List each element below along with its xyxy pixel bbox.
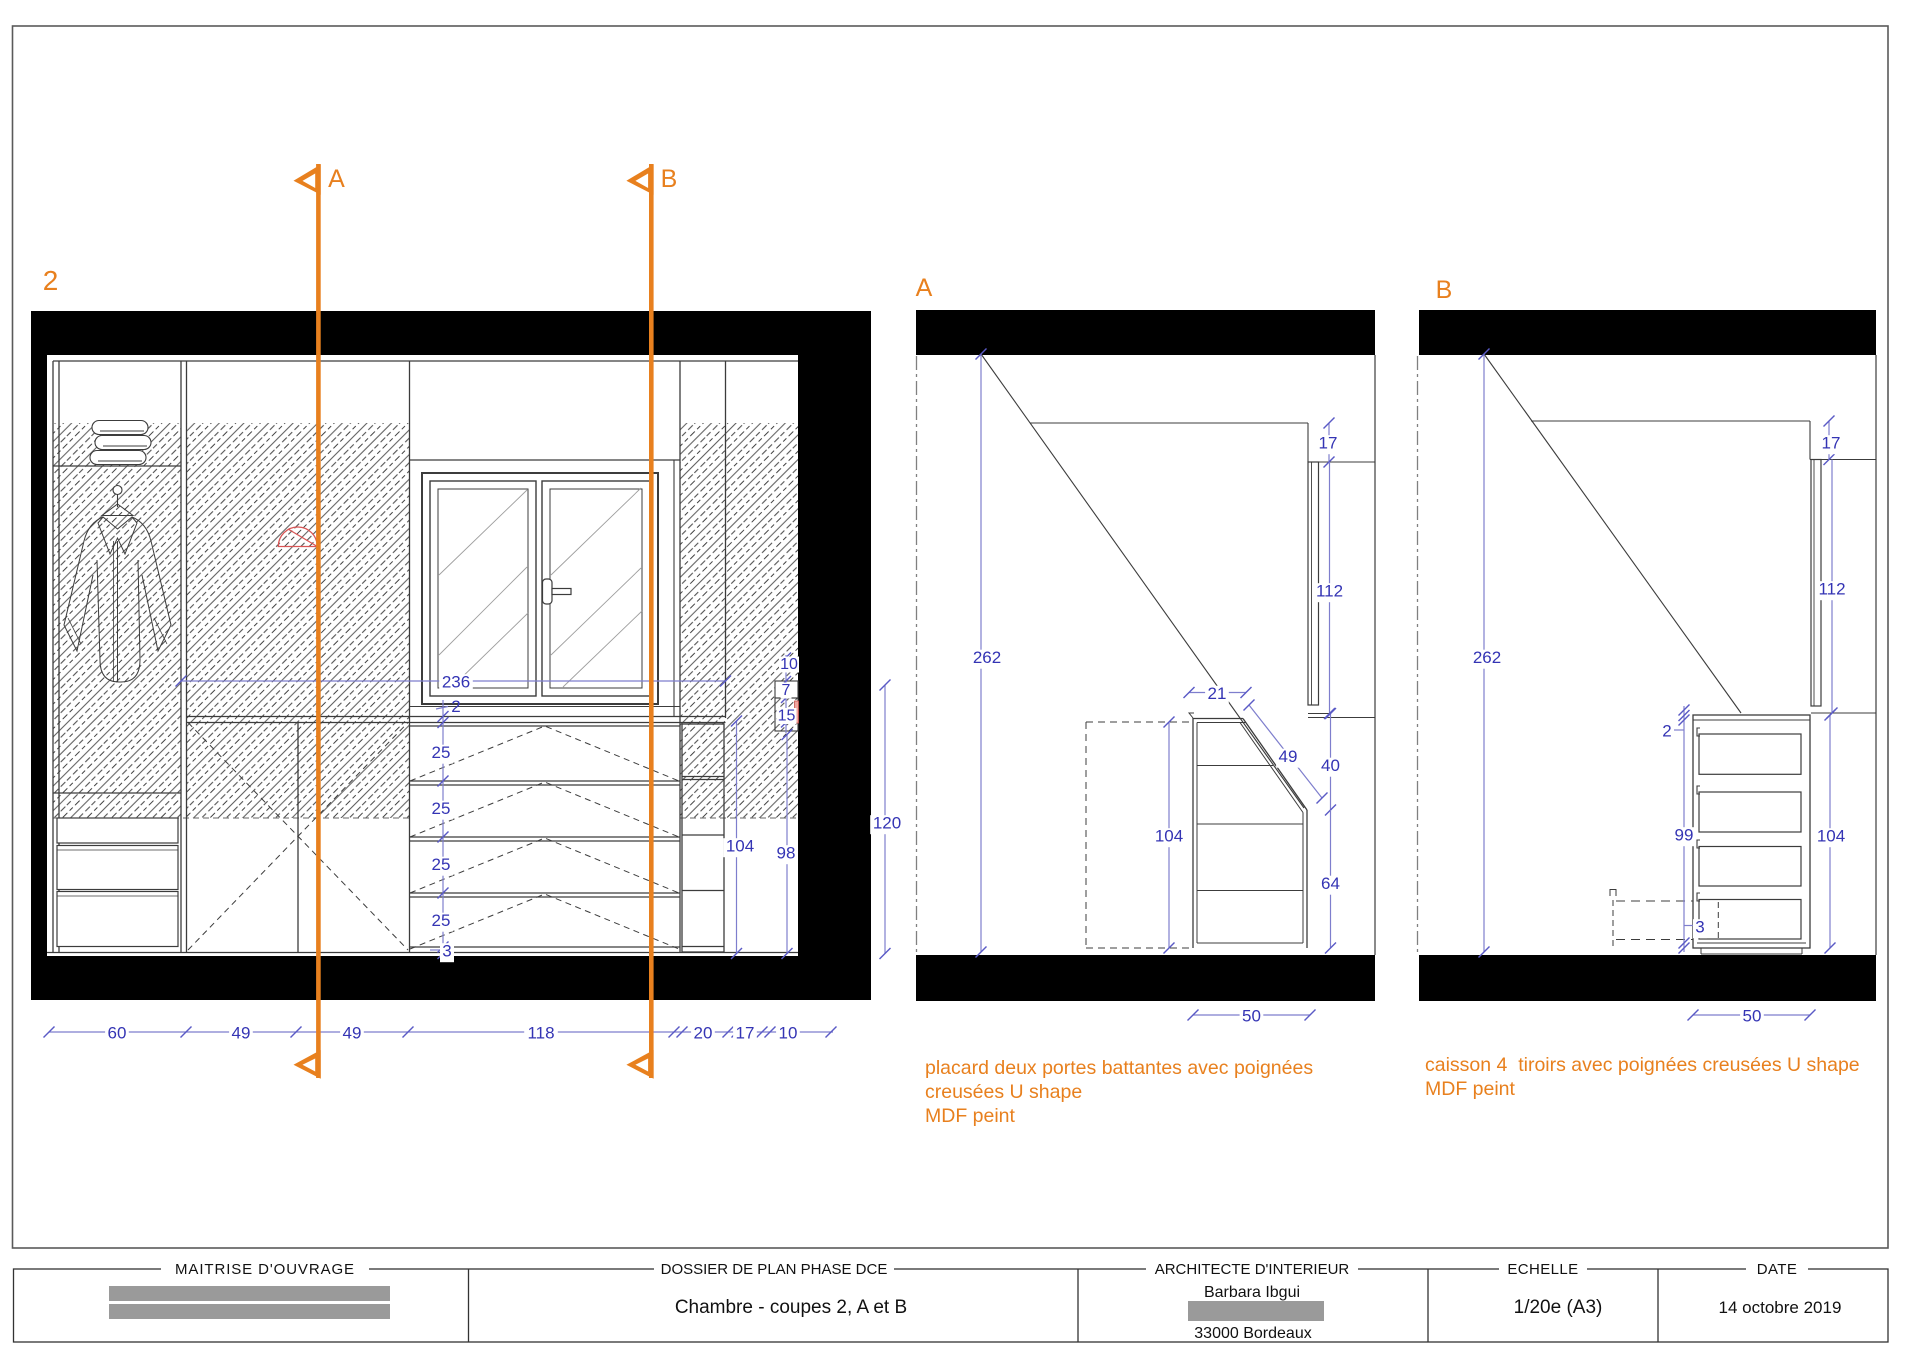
svg-text:236: 236 <box>442 673 470 692</box>
svg-text:25: 25 <box>432 743 451 762</box>
svg-text:64: 64 <box>1321 874 1340 893</box>
svg-text:25: 25 <box>432 911 451 930</box>
svg-text:112: 112 <box>1316 582 1343 601</box>
svg-text:Chambre - coupes 2, A et B: Chambre - coupes 2, A et B <box>675 1297 907 1318</box>
svg-text:112: 112 <box>1818 580 1845 599</box>
svg-text:50: 50 <box>1743 1007 1762 1026</box>
svg-text:DATE: DATE <box>1757 1261 1798 1278</box>
svg-text:104: 104 <box>726 837 754 856</box>
svg-text:118: 118 <box>527 1024 554 1043</box>
svg-text:17: 17 <box>1319 434 1338 453</box>
svg-text:Barbara Ibgui: Barbara Ibgui <box>1204 1284 1300 1301</box>
svg-text:14 octobre 2019: 14 octobre 2019 <box>1719 1298 1842 1317</box>
svg-text:21: 21 <box>1208 684 1227 703</box>
svg-text:placard deux portes battantes: placard deux portes battantes avec poign… <box>925 1057 1313 1079</box>
svg-text:10: 10 <box>780 656 798 673</box>
svg-text:104: 104 <box>1817 827 1845 846</box>
svg-text:A: A <box>328 165 345 193</box>
svg-text:ECHELLE: ECHELLE <box>1507 1261 1578 1278</box>
svg-text:15: 15 <box>778 708 796 725</box>
svg-text:50: 50 <box>1242 1007 1261 1026</box>
svg-text:MDF peint: MDF peint <box>925 1105 1016 1127</box>
svg-text:262: 262 <box>1473 648 1501 667</box>
svg-text:104: 104 <box>1155 827 1183 846</box>
svg-text:25: 25 <box>432 855 451 874</box>
svg-text:40: 40 <box>1321 756 1340 775</box>
svg-text:20: 20 <box>694 1024 713 1043</box>
svg-text:33000 Bordeaux: 33000 Bordeaux <box>1194 1325 1311 1342</box>
svg-text:10: 10 <box>779 1024 798 1043</box>
svg-text:98: 98 <box>777 844 796 863</box>
svg-text:99: 99 <box>1675 826 1694 845</box>
svg-text:17: 17 <box>736 1024 755 1043</box>
svg-text:B: B <box>661 165 678 193</box>
svg-text:49: 49 <box>343 1024 362 1043</box>
svg-text:ARCHITECTE D'INTERIEUR: ARCHITECTE D'INTERIEUR <box>1155 1261 1350 1278</box>
svg-text:262: 262 <box>973 648 1001 667</box>
svg-text:60: 60 <box>108 1024 127 1043</box>
svg-text:caisson 4 tiroirs avec poigné: caisson 4 tiroirs avec poignées creusées… <box>1425 1054 1860 1076</box>
svg-text:3: 3 <box>442 942 451 961</box>
svg-text:49: 49 <box>1279 747 1298 766</box>
svg-text:creusées U shape: creusées U shape <box>925 1081 1082 1103</box>
svg-text:2: 2 <box>451 697 460 716</box>
svg-text:MDF peint: MDF peint <box>1425 1078 1516 1100</box>
svg-text:A: A <box>916 274 933 302</box>
svg-text:3: 3 <box>1695 918 1704 937</box>
svg-text:120: 120 <box>873 814 901 833</box>
svg-text:2: 2 <box>1662 722 1671 741</box>
svg-text:2: 2 <box>43 265 59 296</box>
svg-text:17: 17 <box>1822 434 1841 453</box>
svg-text:25: 25 <box>432 799 451 818</box>
svg-text:DOSSIER DE PLAN PHASE DCE: DOSSIER DE PLAN PHASE DCE <box>661 1261 888 1278</box>
svg-text:MAITRISE D'OUVRAGE: MAITRISE D'OUVRAGE <box>175 1261 355 1278</box>
svg-text:7: 7 <box>782 682 791 699</box>
svg-text:1/20e (A3): 1/20e (A3) <box>1514 1297 1603 1318</box>
svg-text:B: B <box>1436 276 1453 304</box>
svg-text:49: 49 <box>232 1024 251 1043</box>
